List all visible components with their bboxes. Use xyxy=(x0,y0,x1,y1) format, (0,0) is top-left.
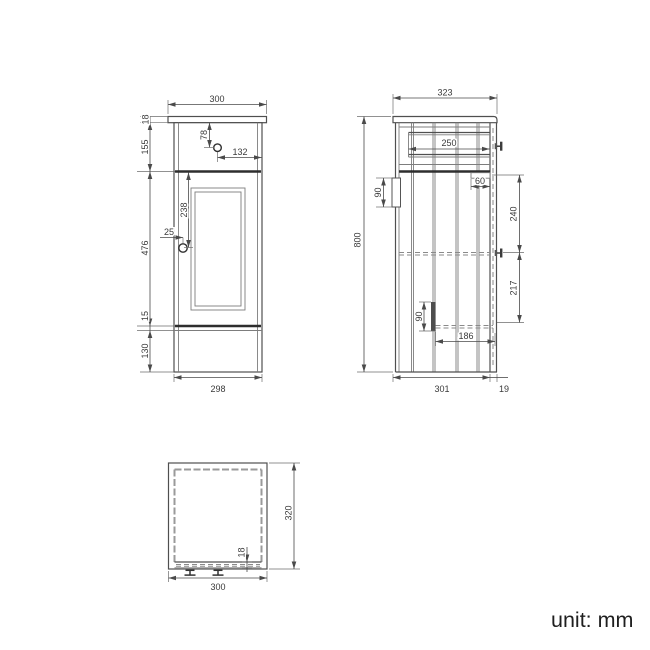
front-view: 300 18 155 476 15 130 78 132 238 25 xyxy=(137,94,267,394)
dim-plan-depth: 320 xyxy=(284,505,294,520)
dim-front-counter-thickness: 18 xyxy=(141,114,151,124)
dim-front-knob-right-offset: 132 xyxy=(232,147,247,157)
dim-front-door-knob-left-offset: 25 xyxy=(164,227,174,237)
dim-side-lower-span: 217 xyxy=(509,280,519,295)
side-drawer-knob-icon xyxy=(495,142,503,151)
dim-front-top-section: 155 xyxy=(140,139,150,154)
front-door-knob-icon xyxy=(179,244,187,252)
dim-front-bottom-rail: 15 xyxy=(140,311,150,321)
dim-plan-width: 300 xyxy=(210,582,225,592)
dim-plan-front-thickness: 18 xyxy=(237,547,247,557)
dim-side-upper-span: 240 xyxy=(509,206,519,221)
dim-front-counter-width: 300 xyxy=(209,94,224,104)
plan-carcass-outline xyxy=(169,463,268,569)
dim-front-door-knob-top-offset: 238 xyxy=(179,202,189,217)
dim-front-knob-top-offset: 78 xyxy=(199,130,209,140)
side-countertop xyxy=(393,117,497,123)
foot-fitting-icon xyxy=(185,570,196,575)
side-view: 250 60 90 90 xyxy=(353,88,525,395)
side-door-knob-icon xyxy=(495,249,503,258)
dim-front-plinth: 130 xyxy=(140,343,150,358)
dim-side-total-depth: 323 xyxy=(437,88,452,98)
dim-side-top-bracket: 90 xyxy=(373,187,383,197)
dim-side-shelf-depth: 186 xyxy=(458,331,473,341)
side-top-bracket xyxy=(392,178,401,207)
dim-side-bottom-bracket: 90 xyxy=(414,311,424,321)
foot-fitting-icon xyxy=(213,570,224,575)
dim-side-rail-depth: 60 xyxy=(475,176,485,186)
technical-drawing-page: 300 18 155 476 15 130 78 132 238 25 xyxy=(0,0,650,650)
vanity-unit-dimension-drawing: 300 18 155 476 15 130 78 132 238 25 xyxy=(0,0,650,650)
unit-note: unit: mm xyxy=(551,608,633,632)
dim-side-body-depth: 301 xyxy=(434,384,449,394)
dim-front-body-width: 298 xyxy=(210,384,225,394)
plan-view: 320 18 300 xyxy=(169,463,301,592)
dim-front-door-section: 476 xyxy=(140,240,150,255)
front-countertop xyxy=(168,117,267,123)
dim-side-door-thickness: 19 xyxy=(499,384,509,394)
side-bottom-bracket xyxy=(431,302,436,331)
dim-side-drawer-depth: 250 xyxy=(441,138,456,148)
dim-side-total-height: 800 xyxy=(353,232,363,247)
front-drawer-knob-icon xyxy=(214,144,222,152)
